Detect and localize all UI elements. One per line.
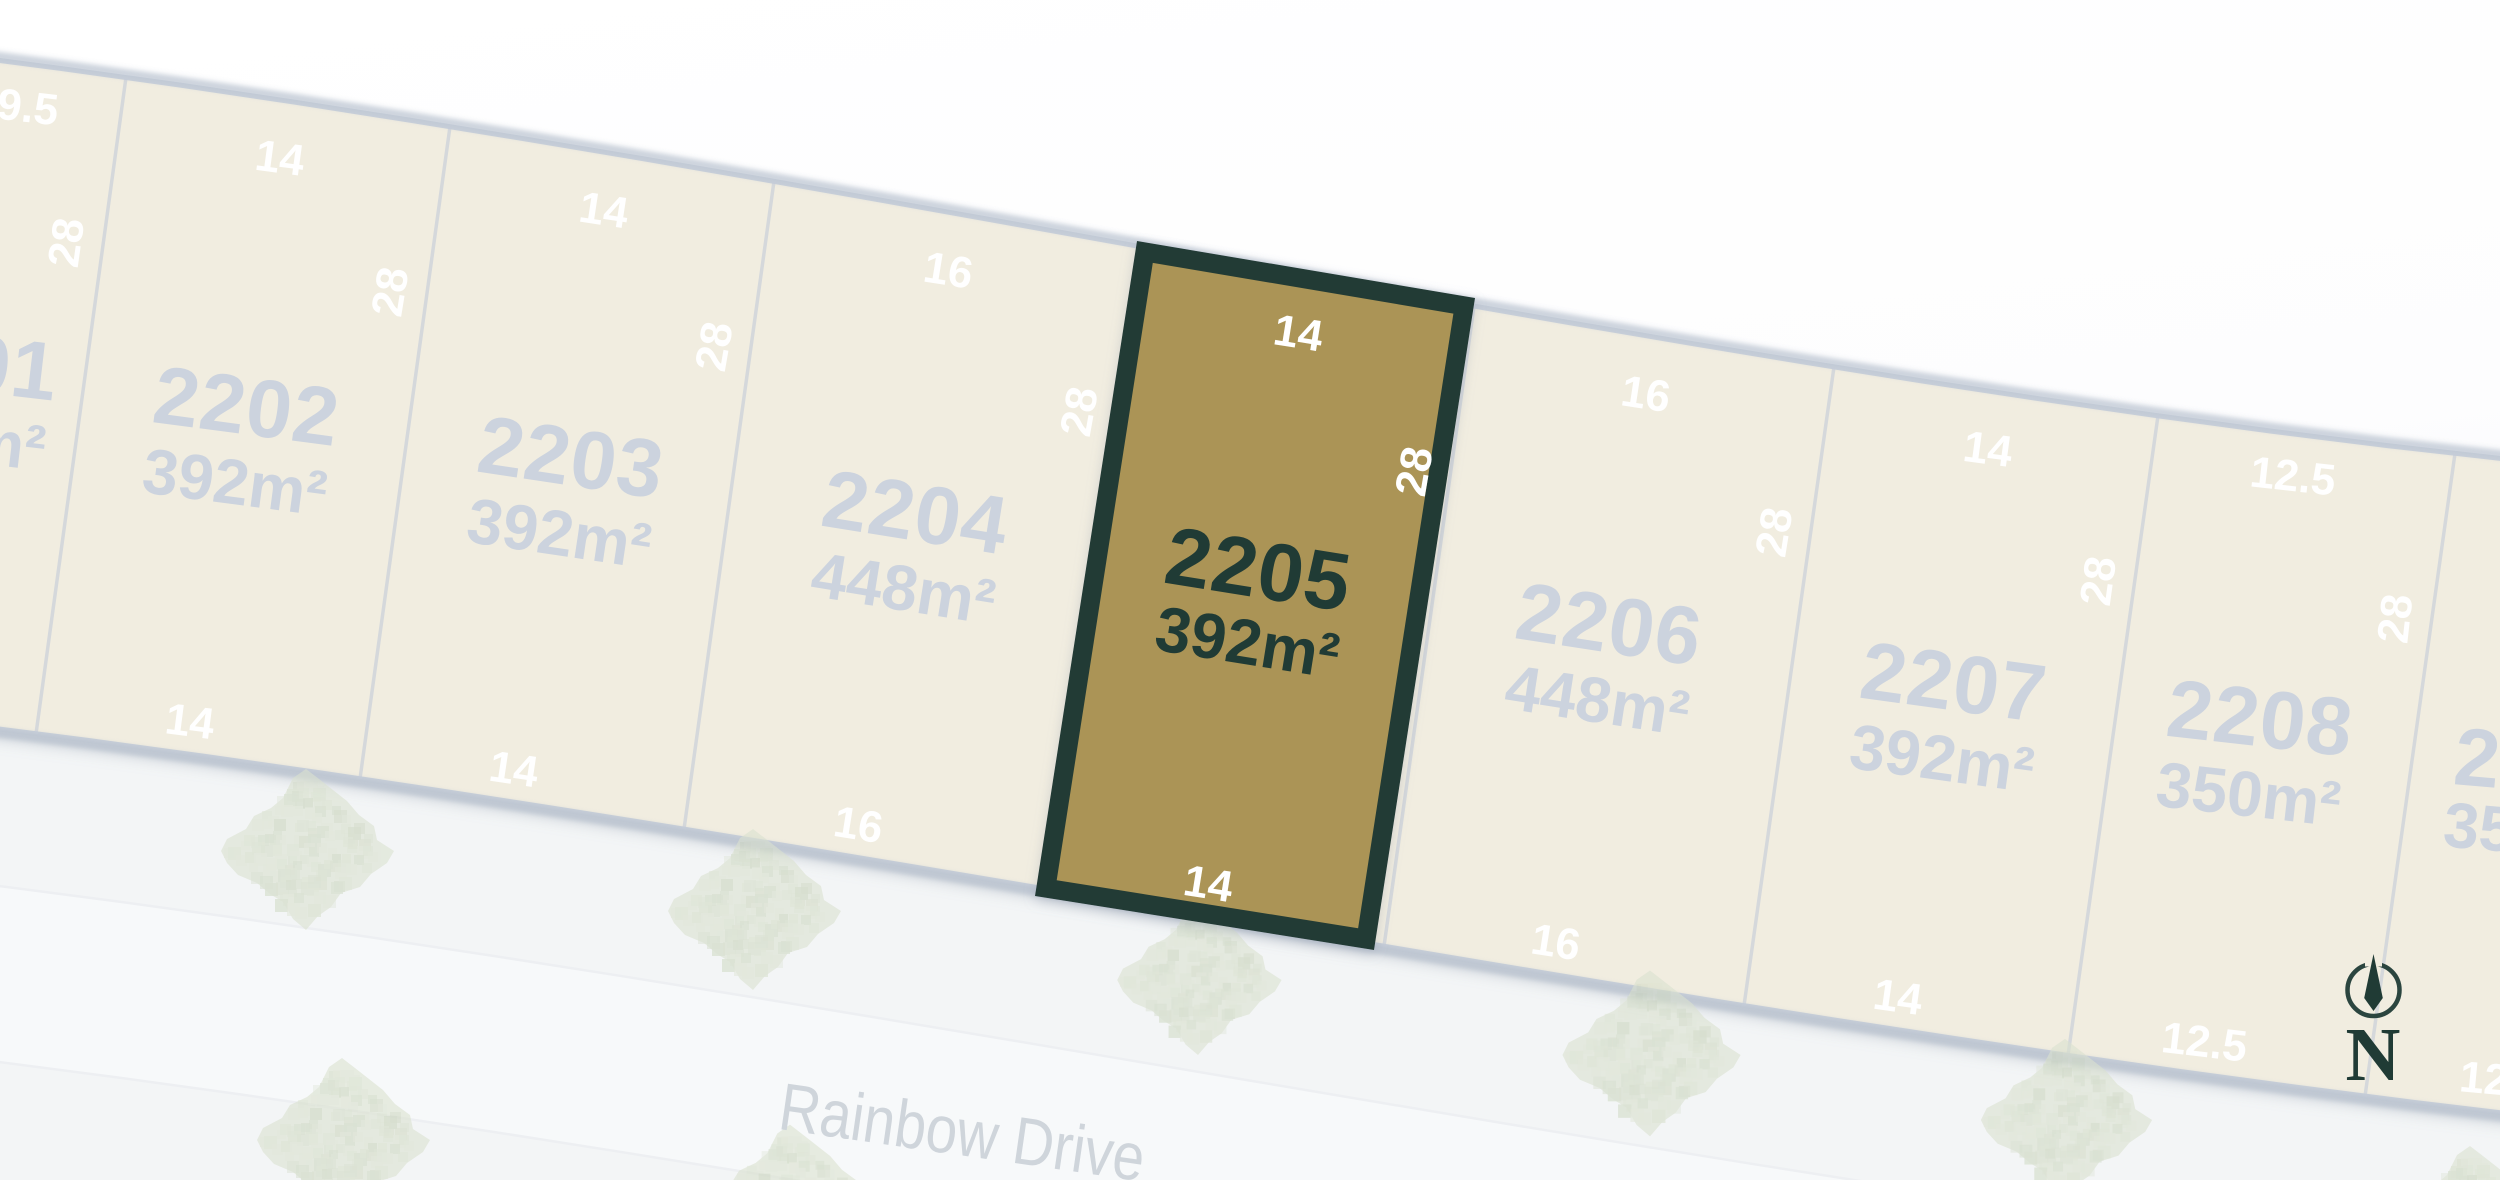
svg-text:28: 28 (1386, 443, 1443, 500)
svg-text:28: 28 (39, 215, 94, 270)
svg-text:28: 28 (2071, 553, 2126, 608)
svg-text:16: 16 (920, 243, 976, 299)
svg-text:12.5: 12.5 (2248, 447, 2339, 505)
svg-text:14: 14 (1180, 856, 1237, 912)
svg-text:14: 14 (1870, 970, 1926, 1025)
svg-text:14: 14 (162, 694, 217, 749)
svg-text:14: 14 (252, 131, 308, 186)
svg-text:14: 14 (1270, 305, 1327, 361)
svg-text:16: 16 (1528, 915, 1584, 971)
svg-text:16: 16 (1618, 366, 1674, 422)
svg-text:14: 14 (576, 183, 632, 239)
svg-text:16: 16 (830, 797, 886, 853)
svg-text:28: 28 (362, 264, 418, 320)
svg-text:14: 14 (1960, 422, 2016, 477)
svg-text:14: 14 (486, 742, 542, 798)
svg-text:9.5: 9.5 (0, 80, 61, 136)
svg-text:28: 28 (1051, 383, 1108, 440)
svg-text:12.5: 12.5 (2159, 1013, 2250, 1072)
svg-text:12.5: 12.5 (2457, 1052, 2500, 1109)
svg-text:28: 28 (1746, 504, 1802, 560)
svg-text:28: 28 (686, 318, 743, 375)
svg-text:N: N (2346, 1013, 2401, 1097)
svg-text:28: 28 (2368, 592, 2422, 646)
